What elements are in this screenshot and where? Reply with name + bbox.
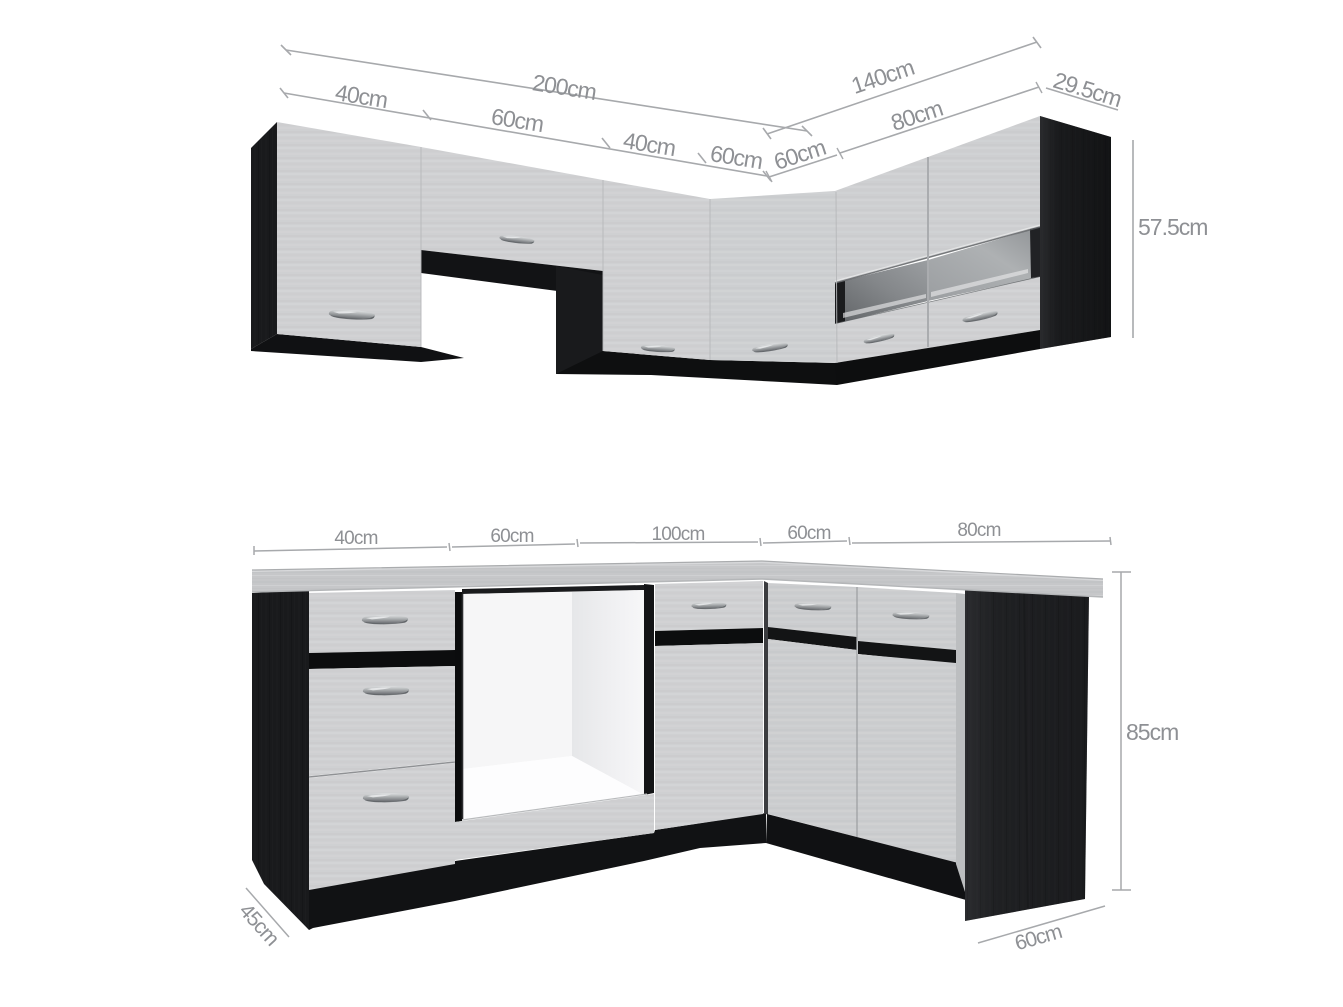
svg-text:60cm: 60cm bbox=[787, 523, 830, 544]
svg-text:40cm: 40cm bbox=[334, 528, 377, 549]
svg-text:100cm: 100cm bbox=[651, 524, 704, 545]
svg-text:60cm: 60cm bbox=[490, 526, 533, 547]
svg-text:57.5cm: 57.5cm bbox=[1138, 214, 1207, 240]
svg-text:80cm: 80cm bbox=[957, 520, 1000, 541]
svg-text:85cm: 85cm bbox=[1126, 719, 1178, 745]
